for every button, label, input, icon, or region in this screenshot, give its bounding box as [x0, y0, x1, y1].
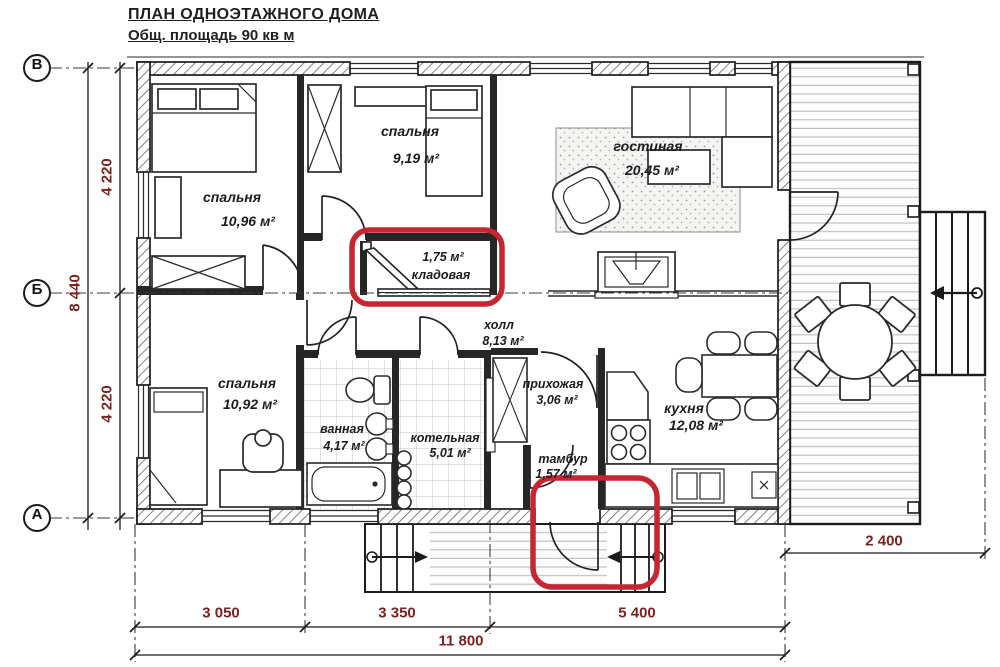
room-label-kitchen-name: кухня [664, 400, 704, 416]
dim-bottom-seg1: 3 050 [202, 605, 240, 622]
dim-left-top: 4 220 [99, 158, 116, 196]
plan-title: ПЛАН ОДНОЭТАЖНОГО ДОМА [128, 6, 379, 24]
dim-bottom-total: 11 800 [438, 633, 483, 650]
room-label-living-name: гостиная [614, 138, 683, 154]
room-label-vestibule-area: 1,57 м² [535, 467, 576, 481]
dim-bottom-seg3: 5 400 [618, 605, 656, 622]
room-label-hall-name: холл [484, 318, 514, 332]
floor-plan-page: ПЛАН ОДНОЭТАЖНОГО ДОМА Общ. площадь 90 к… [0, 0, 1000, 667]
dim-bottom-seg2: 3 350 [378, 605, 416, 622]
room-label-entry-area: 3,06 м² [536, 393, 577, 407]
room-label-kitchen-area: 12,08 м² [669, 417, 723, 433]
room-label-vestibule-name: тамбур [538, 452, 587, 466]
terrace-stairs [920, 212, 985, 375]
room-label-storage-name: кладовая [412, 268, 470, 282]
entry-hall-wardrobe [493, 358, 527, 442]
axis-bubble-v: В [23, 54, 51, 82]
room-label-boiler-area: 5,01 м² [429, 446, 470, 460]
dim-terrace-width: 2 400 [865, 533, 903, 550]
axis-bubble-b: Б [23, 279, 51, 307]
room-label-entry-name: прихожая [523, 377, 584, 391]
room-label-hall-area: 8,13 м² [482, 334, 523, 348]
room-label-boiler-name: котельная [410, 431, 479, 445]
axis-bubble-a: А [23, 504, 51, 532]
furniture-bedroom2 [308, 85, 482, 196]
room-label-living-area: 20,45 м² [625, 162, 679, 178]
room-label-bedroom1-area: 10,96 м² [221, 213, 275, 229]
room-label-storage-area: 1,75 м² [422, 250, 463, 264]
room-label-bedroom2-area: 9,19 м² [393, 150, 439, 166]
room-label-bathroom-name: ванная [320, 422, 364, 436]
room-label-bedroom2-name: спальня [381, 123, 439, 139]
furniture-bedroom1 [152, 84, 256, 289]
title-block: ПЛАН ОДНОЭТАЖНОГО ДОМА Общ. площадь 90 к… [128, 6, 379, 44]
porch [365, 524, 665, 592]
dim-left-total: 8 440 [67, 274, 84, 312]
room-label-bathroom-area: 4,17 м² [323, 439, 364, 453]
room-label-bedroom3-name: спальня [218, 375, 276, 391]
room-label-bedroom3-area: 10,92 м² [223, 396, 277, 412]
plan-subtitle: Общ. площадь 90 кв м [128, 27, 379, 44]
dim-left-bottom: 4 220 [99, 385, 116, 423]
room-label-bedroom1-name: спальня [203, 189, 261, 205]
